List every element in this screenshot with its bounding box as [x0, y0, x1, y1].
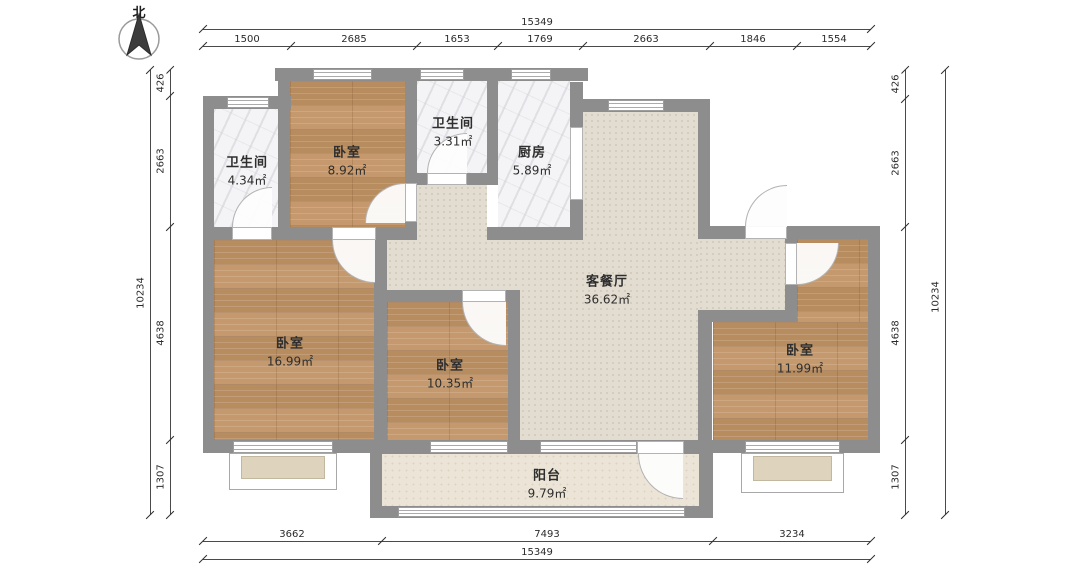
- room-area: 5.89㎡: [513, 162, 552, 179]
- door-leaf: [232, 227, 272, 240]
- wall: [203, 96, 214, 453]
- floor-corridor-2: [387, 240, 520, 290]
- dim-line-left-segments: [170, 70, 171, 515]
- compass-north-icon: [116, 8, 162, 64]
- wall: [508, 290, 520, 452]
- dim-line-top-segments: [203, 46, 871, 47]
- room-area: 9.79㎡: [528, 485, 567, 502]
- dim-top-seg: 1846: [738, 34, 767, 45]
- window-balcony-glazing: [398, 507, 685, 517]
- kitchen-doorway-opening: [570, 127, 583, 200]
- dim-line-bottom-total: [203, 559, 871, 560]
- room-label-living-dining: 客餐厅 36.62㎡: [584, 271, 630, 308]
- room-area: 16.99㎡: [267, 353, 313, 370]
- dim-top-total: 15349: [519, 17, 555, 28]
- bay-window-right-sill: [753, 456, 832, 481]
- room-name: 卧室: [328, 142, 367, 161]
- door-leaf: [405, 183, 417, 222]
- dim-bottom-seg: 7493: [532, 529, 561, 540]
- wall: [868, 226, 880, 452]
- floor-entry-nook: [698, 239, 785, 310]
- room-label-bedroom-right: 卧室 11.99㎡: [777, 340, 823, 377]
- dim-line-right-segments: [905, 70, 906, 515]
- wall: [487, 68, 498, 185]
- dim-left-seg: 4638: [156, 318, 167, 347]
- dim-top-seg: 1653: [442, 34, 471, 45]
- dim-line-right-total: [945, 70, 946, 515]
- window: [233, 441, 333, 453]
- door-leaf: [785, 243, 797, 285]
- room-name: 厨房: [513, 142, 552, 161]
- dim-right-seg: 426: [891, 72, 902, 95]
- room-name: 卧室: [777, 340, 823, 359]
- room-label-bedroom-mid: 卧室 10.35㎡: [427, 355, 473, 392]
- wall: [698, 310, 797, 322]
- room-area: 11.99㎡: [777, 360, 823, 377]
- dim-right-seg: 1307: [891, 462, 902, 491]
- dim-line-top-total: [203, 29, 871, 30]
- room-area: 4.34㎡: [226, 172, 268, 189]
- room-name: 阳台: [528, 465, 567, 484]
- dim-left-seg: 1307: [156, 462, 167, 491]
- floor-living-upper: [583, 112, 698, 240]
- dim-line-bottom-segments: [203, 541, 871, 542]
- window: [420, 69, 464, 80]
- wall: [698, 111, 710, 238]
- dim-left-total: 10234: [136, 275, 147, 311]
- room-label-bedroom-top: 卧室 8.92㎡: [328, 142, 367, 179]
- window: [540, 441, 637, 453]
- door-leaf: [462, 290, 506, 302]
- wall: [698, 310, 712, 452]
- room-label-bedroom-left: 卧室 16.99㎡: [267, 333, 313, 370]
- room-name: 卧室: [267, 333, 313, 352]
- window: [511, 69, 551, 80]
- dim-left-seg: 426: [156, 71, 167, 94]
- wall: [570, 82, 583, 127]
- room-name: 卫生间: [432, 113, 474, 132]
- dim-right-seg: 2663: [891, 148, 902, 177]
- door-leaf: [637, 441, 684, 454]
- dim-top-seg: 1500: [232, 34, 261, 45]
- window: [227, 97, 269, 108]
- room-label-bath-left: 卫生间 4.34㎡: [226, 152, 268, 189]
- door-leaf: [332, 227, 376, 240]
- window: [430, 441, 508, 453]
- wall: [487, 227, 583, 240]
- room-area: 10.35㎡: [427, 375, 473, 392]
- room-area: 8.92㎡: [328, 162, 367, 179]
- room-name: 卧室: [427, 355, 473, 374]
- dim-top-seg: 2685: [339, 34, 368, 45]
- room-label-kitchen: 厨房 5.89㎡: [513, 142, 552, 179]
- dim-bottom-total: 15349: [519, 547, 555, 558]
- entry-door-swing-arc: [745, 185, 787, 227]
- dim-bottom-seg: 3662: [277, 529, 306, 540]
- dim-top-seg: 1769: [525, 34, 554, 45]
- bay-window-left-sill: [241, 456, 325, 479]
- door-leaf: [427, 173, 467, 185]
- entry-door-leaf: [745, 226, 787, 239]
- window: [745, 441, 840, 453]
- floor-plan: 卫生间 4.34㎡ 卧室 8.92㎡ 卫生间 3.31㎡ 厨房 5.89㎡ 客餐…: [0, 0, 1074, 576]
- room-label-balcony: 阳台 9.79㎡: [528, 465, 567, 502]
- window: [608, 100, 664, 111]
- room-name: 卫生间: [226, 152, 268, 171]
- dim-top-seg: 2663: [631, 34, 660, 45]
- dim-top-seg: 1554: [819, 34, 848, 45]
- floor-corridor-1: [417, 185, 487, 240]
- wall: [278, 68, 290, 234]
- dim-right-seg: 4638: [891, 318, 902, 347]
- window: [313, 69, 372, 80]
- dim-right-total: 10234: [931, 279, 942, 315]
- dim-line-left-total: [150, 70, 151, 515]
- dim-left-seg: 2663: [156, 146, 167, 175]
- room-name: 客餐厅: [584, 271, 630, 290]
- room-area: 3.31㎡: [432, 133, 474, 150]
- room-area: 36.62㎡: [584, 291, 630, 308]
- dim-bottom-seg: 3234: [777, 529, 806, 540]
- room-label-bath-middle: 卫生间 3.31㎡: [432, 113, 474, 150]
- wall: [374, 227, 387, 452]
